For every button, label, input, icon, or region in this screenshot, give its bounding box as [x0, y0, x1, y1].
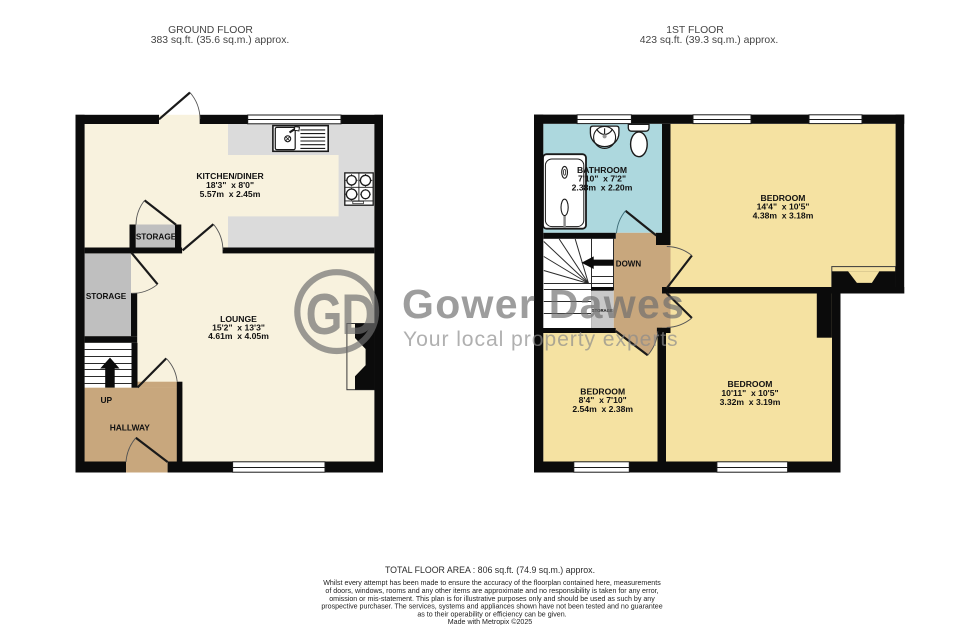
svg-text:omission or mis-statement. Thi: omission or mis-statement. This plan is … [329, 595, 655, 603]
svg-text:Your local property experts: Your local property experts [403, 328, 679, 351]
svg-text:DOWN: DOWN [616, 259, 642, 268]
svg-text:STORAGE: STORAGE [86, 292, 127, 301]
svg-text:3.32m x 3.19m: 3.32m x 3.19m [720, 397, 781, 407]
svg-text:4.61m x 4.05m: 4.61m x 4.05m [208, 331, 269, 341]
svg-text:HALLWAY: HALLWAY [110, 422, 151, 432]
svg-text:prospective purchaser. The ser: prospective purchaser. The services, sys… [321, 603, 662, 611]
svg-text:Made with Metropix ©2025: Made with Metropix ©2025 [448, 618, 533, 625]
svg-text:GD: GD [306, 283, 375, 347]
svg-text:STORAGE: STORAGE [136, 232, 177, 241]
svg-text:4.38m x 3.18m: 4.38m x 3.18m [753, 211, 814, 221]
svg-text:as to their operability or eff: as to their operability or efficiency ca… [417, 610, 566, 618]
svg-text:Gower Dawes: Gower Dawes [402, 281, 685, 327]
svg-text:of doors, windows, rooms and a: of doors, windows, rooms and any other i… [325, 587, 658, 595]
svg-text:383 sq.ft. (35.6 sq.m.) approx: 383 sq.ft. (35.6 sq.m.) approx. [151, 35, 290, 46]
svg-text:TOTAL FLOOR AREA : 806 sq.ft.: TOTAL FLOOR AREA : 806 sq.ft. (74.9 sq.m… [385, 565, 595, 575]
svg-text:423 sq.ft. (39.3 sq.m.) approx: 423 sq.ft. (39.3 sq.m.) approx. [640, 35, 779, 46]
svg-text:Whilst every attempt has been: Whilst every attempt has been made to en… [323, 579, 661, 587]
svg-text:5.57m x 2.45m: 5.57m x 2.45m [200, 189, 261, 199]
svg-text:2.54m x 2.38m: 2.54m x 2.38m [572, 404, 633, 414]
svg-text:2.38m x 2.20m: 2.38m x 2.20m [572, 182, 633, 192]
svg-text:UP: UP [100, 395, 112, 405]
